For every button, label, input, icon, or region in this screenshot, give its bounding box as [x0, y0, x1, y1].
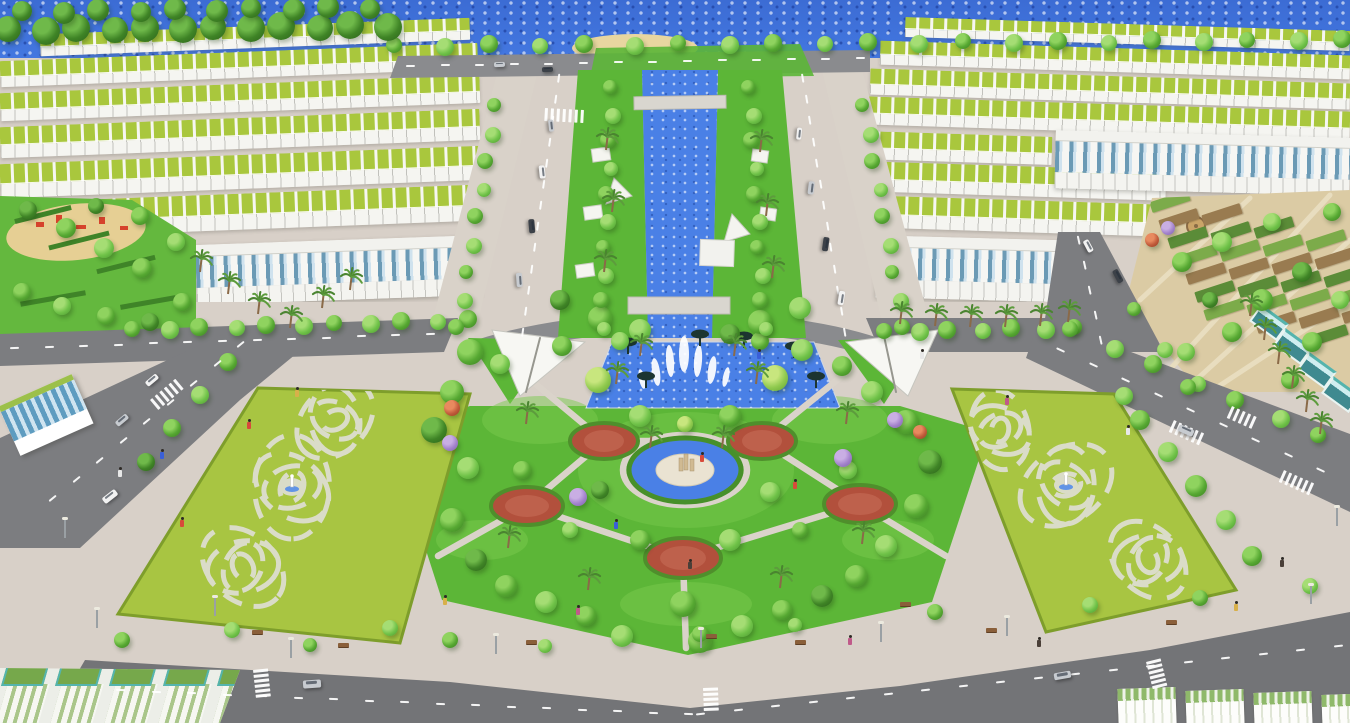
flowering-tree-purple [569, 488, 587, 506]
pergola-canopy [109, 665, 157, 686]
zebra-bar [562, 109, 566, 122]
person-head [1281, 557, 1284, 560]
street-tree [1333, 30, 1350, 48]
tree [1216, 510, 1236, 530]
lane-dash [510, 63, 519, 66]
garden-plot [1201, 203, 1242, 226]
street-tree [124, 321, 140, 337]
street-tree [750, 240, 764, 254]
street-tree [477, 153, 493, 169]
tree [442, 632, 458, 648]
lane-dash [696, 713, 705, 716]
housing-row [866, 131, 1053, 165]
person-head [849, 635, 852, 638]
lane-dash [475, 64, 484, 67]
pergola-canopy [55, 665, 103, 686]
street-tree [626, 37, 644, 55]
tree [789, 297, 811, 319]
shophouse-row [195, 235, 481, 305]
street-tree [894, 319, 910, 335]
lane-dash [557, 74, 561, 83]
zebra-bar [1249, 416, 1257, 429]
tree [13, 283, 31, 301]
flowering-tree-red [1145, 233, 1159, 247]
lane-dash [832, 264, 836, 273]
flowering-tree-purple [887, 412, 903, 428]
center-pool [629, 438, 741, 502]
car [1083, 239, 1094, 253]
street-tree [229, 320, 245, 336]
tree [670, 591, 696, 617]
street-tree [362, 315, 380, 333]
lamp-head [94, 607, 100, 610]
lane-dash [554, 95, 558, 104]
pergola-canopy [163, 665, 211, 686]
car [144, 373, 159, 387]
person-head [701, 452, 704, 455]
statue [684, 454, 688, 470]
lamp-head [1334, 505, 1340, 508]
tree [719, 529, 741, 551]
tree [1292, 262, 1312, 282]
lane-dash [1334, 645, 1343, 648]
tree [538, 639, 552, 653]
lane-dash [718, 59, 727, 62]
lane-dash [839, 306, 843, 315]
flowering-tree-red [444, 400, 460, 416]
park-path [683, 504, 860, 558]
planter-greens [1321, 693, 1350, 707]
person-head [181, 517, 184, 520]
lane-dash [1121, 377, 1130, 383]
lane-dash [222, 693, 231, 696]
lane-dash [1082, 261, 1086, 270]
street-tree [257, 316, 275, 334]
flower-bed-inner [742, 430, 782, 452]
tree [918, 450, 942, 474]
street-tree [307, 15, 333, 41]
person-head [161, 449, 164, 452]
tree [1158, 442, 1178, 462]
lane-dash [1034, 677, 1043, 680]
street-lamp [214, 598, 216, 616]
lamp-head [1308, 583, 1314, 586]
street-tree [1049, 32, 1067, 50]
tree [1251, 289, 1273, 311]
person-head [615, 519, 618, 522]
street-tree [53, 2, 75, 24]
lane-dash [533, 243, 537, 252]
flower-bed-inner [505, 495, 549, 517]
lane-dash [114, 343, 123, 346]
tree [861, 381, 883, 403]
flower-bed [824, 485, 896, 523]
person [180, 520, 184, 527]
street-tree [102, 17, 128, 43]
car [796, 128, 802, 140]
person-head [119, 467, 122, 470]
street-tree [975, 323, 991, 339]
street-lamp [880, 624, 882, 642]
lane-dash [815, 158, 819, 167]
tree [88, 198, 104, 214]
street-tree [283, 0, 305, 21]
tree [303, 638, 317, 652]
tree [382, 620, 398, 636]
tree [1302, 332, 1322, 352]
lane-dash [149, 342, 158, 345]
garden-plot [1323, 265, 1350, 288]
lane-dash [1109, 669, 1118, 672]
tree [550, 290, 570, 310]
street-tree [1272, 410, 1290, 428]
tree [132, 258, 152, 278]
zebra-bar [704, 707, 719, 711]
lane-dash [1218, 422, 1227, 428]
garden-plot [1289, 288, 1330, 311]
street-tree [910, 35, 928, 53]
zebra-bar [1306, 482, 1314, 495]
person-head [1235, 601, 1238, 604]
flower-bed-inner [584, 430, 624, 452]
car-windshield [542, 168, 545, 176]
lane-dash [545, 158, 549, 167]
street-tree [600, 132, 616, 148]
lane-dash [648, 61, 657, 64]
lane-dash [856, 57, 865, 60]
garden-plot [1228, 257, 1269, 280]
lane-dash [542, 707, 551, 710]
street-tree [392, 312, 410, 330]
lane-dash [818, 179, 822, 188]
street-tree [485, 127, 501, 143]
garden-plot [1185, 262, 1226, 285]
street-tree [874, 208, 890, 224]
lane-dash [357, 335, 366, 338]
street-tree [863, 127, 879, 143]
person-head [921, 349, 924, 352]
car-windshield [306, 681, 317, 685]
bank-kiosk [575, 263, 595, 278]
lane-dash [1056, 347, 1065, 353]
street-tree [598, 268, 614, 284]
street-tree [911, 323, 929, 341]
tree [591, 481, 609, 499]
bank-kiosk [751, 149, 769, 163]
car-windshield [811, 184, 814, 192]
person [793, 482, 797, 489]
tree [56, 218, 76, 238]
statue [679, 458, 683, 471]
bench [900, 602, 911, 607]
tree [1130, 410, 1150, 430]
car [539, 165, 546, 178]
zebra-bar [254, 678, 269, 683]
tree [630, 530, 650, 550]
person [757, 352, 761, 359]
tree [1263, 213, 1281, 231]
car-windshield [799, 130, 802, 138]
grass-patch [482, 396, 598, 444]
tree [927, 604, 943, 620]
street-tree [596, 240, 610, 254]
lane-dash [683, 60, 692, 63]
lane-dash [1071, 673, 1080, 676]
street-tree [885, 265, 899, 279]
lane-dash [435, 702, 444, 705]
street-tree [893, 293, 909, 309]
street-tree [855, 98, 869, 112]
hedge-maze-left [118, 366, 470, 643]
tree [677, 416, 693, 432]
street-tree [457, 293, 473, 309]
street-lamp [1006, 618, 1008, 636]
street-tree [752, 214, 768, 230]
street-lamp [1310, 586, 1312, 604]
street-tree [1127, 302, 1141, 316]
tree [552, 336, 572, 356]
tree [772, 600, 792, 620]
lane-dash [426, 333, 435, 336]
tree [791, 339, 813, 361]
lane-dash [542, 179, 546, 188]
street-lamp [290, 640, 292, 658]
tree [792, 522, 808, 538]
street-lamp [1336, 508, 1338, 526]
street-tree [448, 319, 464, 335]
tree [495, 575, 517, 597]
tree [611, 625, 633, 647]
tree [731, 615, 753, 637]
tree [535, 591, 557, 613]
zebra-bar [544, 108, 548, 121]
street-tree [477, 183, 491, 197]
palm-tree [853, 522, 874, 544]
shophouse-storey [876, 247, 1083, 285]
lane-dash [539, 201, 543, 210]
car-windshield [104, 491, 114, 499]
tree [457, 339, 483, 365]
lane-dash [79, 345, 88, 348]
street-tree [1144, 355, 1162, 373]
street-tree [598, 186, 614, 202]
tree [811, 585, 833, 607]
tree [94, 238, 114, 258]
palm-tree [1297, 390, 1318, 412]
tree [173, 293, 191, 311]
person [1126, 428, 1130, 435]
tree [562, 522, 578, 538]
zebra-bar [1196, 432, 1204, 445]
park-path [527, 441, 604, 506]
person [247, 422, 251, 429]
person-head [577, 605, 580, 608]
lane-dash [808, 701, 817, 704]
street-tree [467, 208, 483, 224]
person [1280, 560, 1284, 567]
lane-dash [536, 222, 540, 231]
tree [719, 405, 741, 427]
street-tree [604, 162, 618, 176]
palm-tree [517, 402, 538, 424]
bench [338, 643, 349, 648]
person [614, 522, 618, 529]
commercial-building [0, 374, 94, 456]
center-pool-island [656, 454, 714, 486]
lane-dash [151, 690, 160, 693]
car [837, 290, 845, 305]
lamp-head [288, 637, 294, 640]
planter-beds [1321, 693, 1350, 723]
lane-dash [142, 417, 150, 425]
lane-dash [45, 346, 54, 349]
car-windshield [825, 240, 828, 249]
street-lamp [700, 630, 702, 648]
person [576, 608, 580, 615]
play-equipment [76, 225, 86, 229]
play-equipment [36, 222, 44, 227]
lane-dash [72, 475, 80, 483]
lane-dash [787, 58, 796, 61]
lane-dash [183, 341, 192, 344]
lane-dash [287, 338, 296, 341]
lane-dash [524, 306, 528, 315]
lane-dash [1296, 649, 1305, 652]
lane-dash [771, 705, 780, 708]
street-tree [746, 108, 762, 124]
street-tree [597, 322, 611, 336]
lane-dash [1088, 362, 1097, 368]
lane-dash [614, 61, 623, 64]
lane-dash [329, 698, 338, 701]
street-tree [759, 322, 773, 336]
street-tree [459, 265, 473, 279]
car-windshield [551, 122, 554, 130]
lane-dash [846, 697, 855, 700]
street-tree [876, 323, 892, 339]
car-windshield [147, 375, 156, 383]
lane-dash [236, 340, 244, 348]
lane-dash [821, 58, 830, 61]
street-tree [746, 186, 762, 202]
lane-dash [95, 456, 103, 464]
street-tree [1037, 321, 1055, 339]
zebra-bar [253, 668, 268, 673]
car [1053, 671, 1071, 681]
street-tree [752, 292, 768, 308]
person-head [1038, 637, 1041, 640]
planter-greens [1185, 689, 1243, 703]
lane-dash [544, 62, 553, 65]
car-windshield [519, 275, 522, 284]
car [494, 61, 505, 66]
park-path-ring [623, 435, 747, 505]
car-windshield [1116, 271, 1122, 280]
car [822, 237, 830, 251]
zebra-bar [255, 683, 270, 688]
flower-bed [491, 487, 563, 525]
lane-dash [10, 347, 19, 350]
lane-dash [1316, 467, 1325, 473]
tree [163, 419, 181, 437]
person-head [1006, 395, 1009, 398]
tree [629, 319, 651, 341]
bank-kiosk [591, 147, 611, 162]
street-tree [764, 34, 782, 52]
lane-dash [189, 379, 197, 387]
bench [526, 640, 537, 645]
car-windshield [496, 62, 503, 64]
street-tree [1310, 427, 1326, 443]
person-head [758, 349, 761, 352]
street-tree [1180, 379, 1196, 395]
lane-dash [1186, 407, 1195, 413]
flower-bed [728, 423, 796, 459]
tree [457, 457, 479, 479]
tree [1082, 597, 1098, 613]
housing-row [866, 195, 1167, 236]
car [1112, 269, 1124, 284]
lane-dash [1251, 437, 1260, 443]
street-tree [1226, 391, 1244, 409]
lane-dash [684, 713, 693, 716]
street-lamp [495, 636, 497, 654]
lane-dash [530, 264, 534, 273]
street-tree [859, 33, 877, 51]
hedgerow [120, 295, 176, 310]
lane-dash [648, 711, 657, 714]
flower-bed-inner [660, 546, 706, 570]
palm-tree [771, 566, 792, 588]
street-tree [817, 36, 833, 52]
tree [760, 482, 780, 502]
flowering-tree-purple [1161, 221, 1175, 235]
lane-dash [1093, 311, 1097, 320]
lane-dash [801, 74, 805, 83]
palm-tree [641, 426, 662, 448]
lane-dash [613, 710, 622, 713]
street-tree [1239, 32, 1255, 48]
tree [490, 354, 510, 374]
lane-dash [1153, 392, 1162, 398]
flowering-tree-purple [834, 449, 852, 467]
lane-dash [293, 696, 302, 699]
lane-dash [884, 693, 893, 696]
flowering-tree-purple [442, 435, 458, 451]
street-tree [374, 13, 402, 41]
palm-tree [499, 526, 520, 548]
tree [167, 233, 185, 251]
garden-bed [104, 684, 157, 723]
lamp-head [212, 595, 218, 598]
street-tree [1002, 319, 1020, 337]
zebra-bar [580, 110, 584, 123]
lane-dash [1221, 657, 1230, 660]
pergola-canopy [1, 665, 49, 686]
lane-dash [521, 328, 525, 337]
masterplan-aerial-render [0, 0, 1350, 723]
garden-plot [1305, 229, 1346, 252]
person-head [689, 559, 692, 562]
zebra-bar [703, 697, 718, 701]
palm-tree [579, 568, 600, 590]
lane-dash [322, 336, 331, 339]
street-tree [741, 80, 755, 94]
street-tree [326, 315, 342, 331]
person [160, 452, 164, 459]
street-tree [1062, 321, 1078, 337]
pergola-garden [0, 660, 290, 723]
